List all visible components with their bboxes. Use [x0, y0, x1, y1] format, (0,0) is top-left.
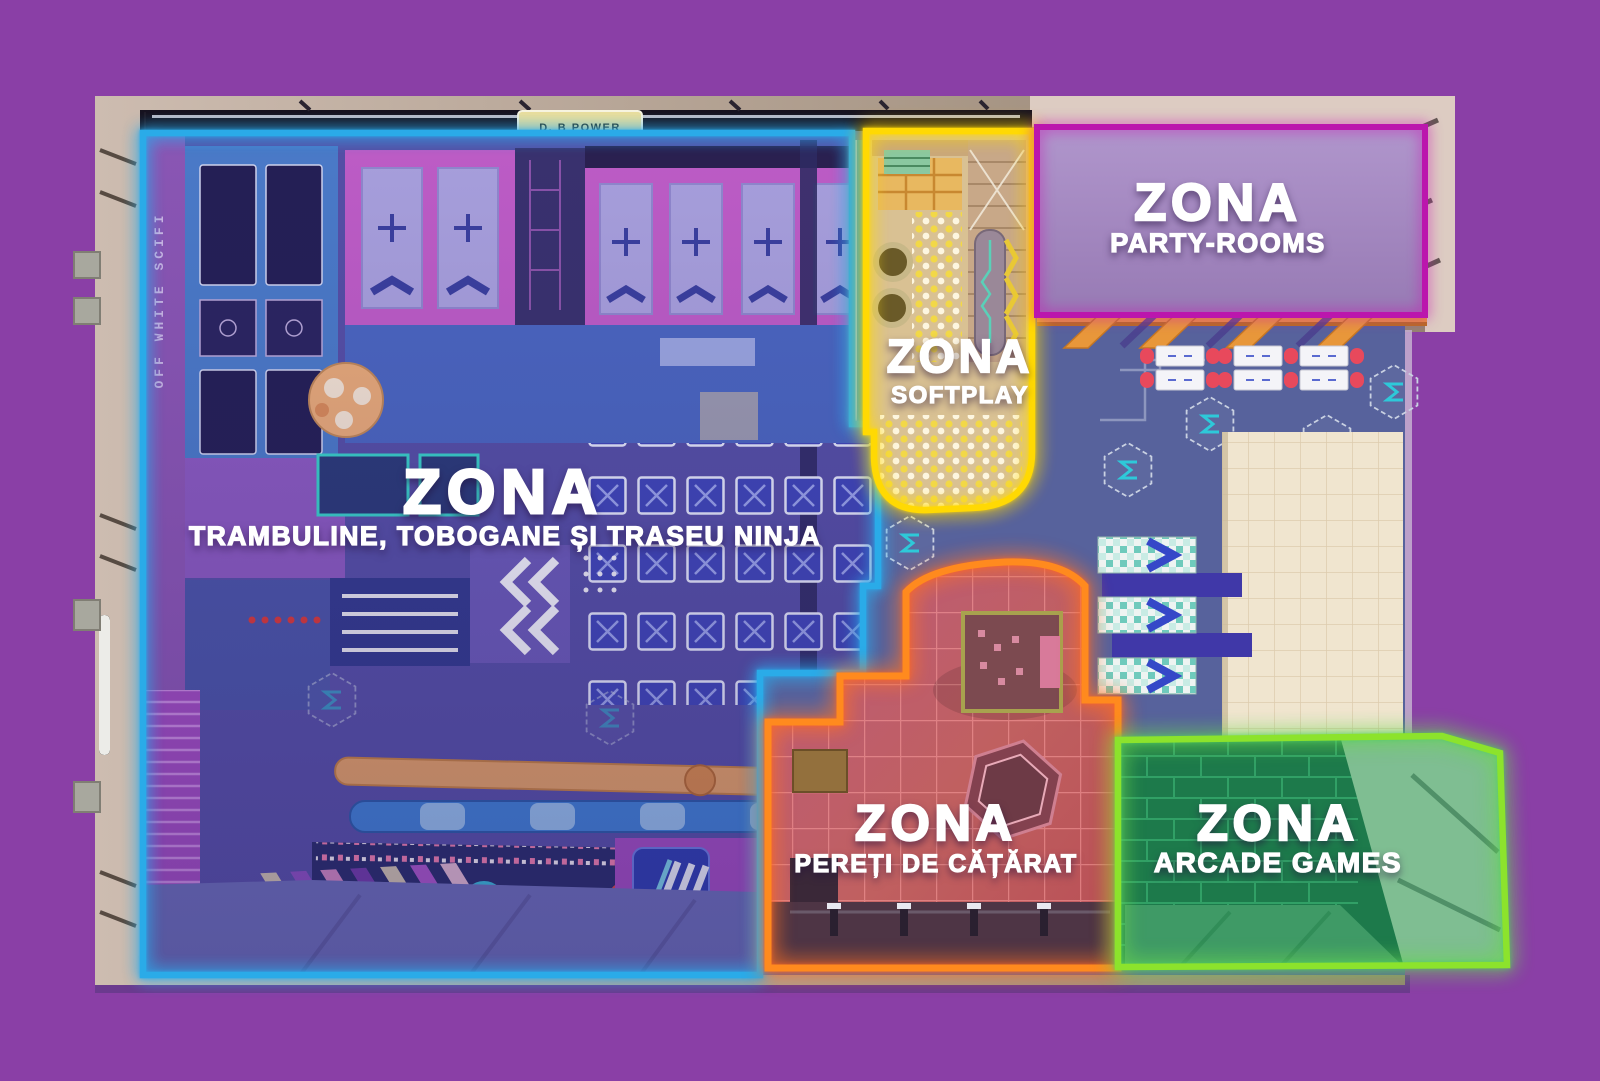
tiled-area	[1222, 432, 1403, 740]
zone-trampoline-title: ZONA	[403, 458, 603, 527]
zone-climbing-title: ZONA	[855, 795, 1017, 851]
zone-arcade-subtitle: ARCADE GAMES	[1154, 847, 1402, 878]
zone-party-subtitle: PARTY-ROOMS	[1110, 228, 1326, 258]
climbing-box	[963, 613, 1061, 711]
zone-trampoline-subtitle: TRAMBULINE, TOBOGANE ȘI TRASEU NINJA	[189, 521, 821, 551]
map-canvas: D. B POWER	[0, 0, 1600, 1081]
zone-softplay-subtitle: SOFTPLAY	[891, 382, 1029, 409]
ballpit-bottom	[880, 415, 1022, 507]
zone-softplay-title: ZONA	[887, 330, 1033, 382]
zone-party-title: ZONA	[1134, 174, 1301, 232]
zone-party-region: ZONA PARTY-ROOMS	[1037, 127, 1425, 315]
zone-arcade-title: ZONA	[1197, 795, 1359, 851]
zone-softplay-region: ZONA SOFTPLAY	[866, 131, 1033, 510]
climb-desk	[793, 750, 847, 792]
climb-base-strip	[768, 902, 1118, 968]
zone-climbing-subtitle: PEREȚI DE CĂȚĂRAT	[794, 849, 1077, 878]
zone-arcade-region: ZONA ARCADE GAMES	[1118, 736, 1507, 968]
